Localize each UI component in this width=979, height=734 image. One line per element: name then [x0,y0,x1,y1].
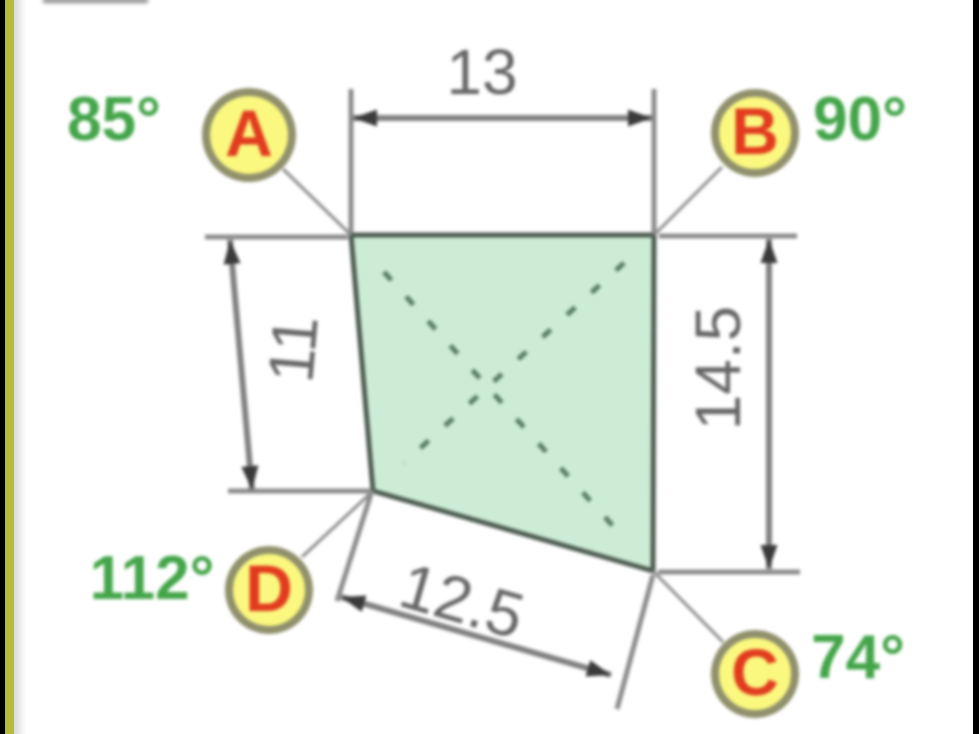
svg-text:13: 13 [446,36,517,108]
svg-text:B: B [731,94,779,168]
svg-text:D: D [245,551,293,625]
svg-text:C: C [731,635,779,709]
svg-text:112°: 112° [90,544,215,613]
svg-text:90°: 90° [813,85,907,154]
svg-text:85°: 85° [67,85,161,154]
svg-text:74°: 74° [811,623,905,692]
svg-text:11: 11 [254,313,332,385]
svg-text:14.5: 14.5 [682,306,754,431]
svg-text:12.5: 12.5 [392,549,532,653]
svg-text:A: A [225,96,273,170]
